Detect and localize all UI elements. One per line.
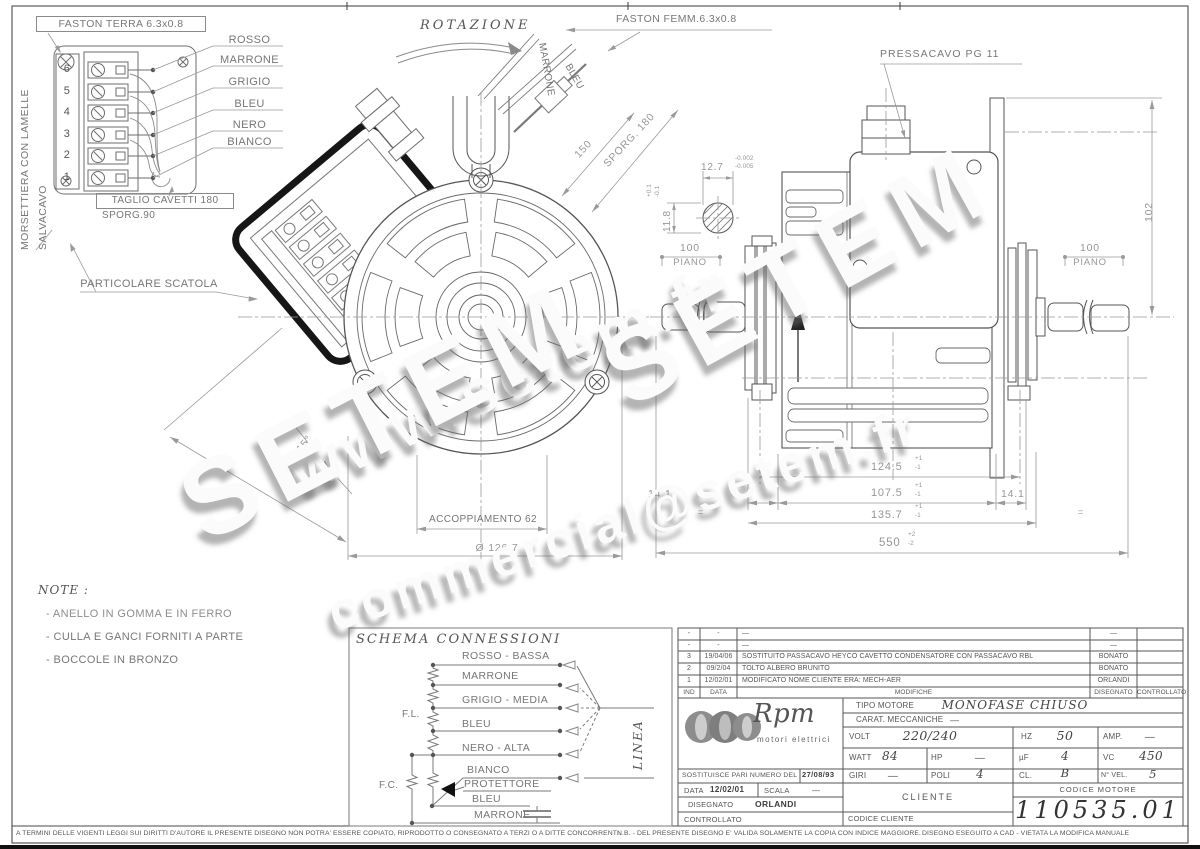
poli-value: 4 <box>955 768 1005 781</box>
schema-fc: F.C. <box>379 780 398 791</box>
rev-row-dis: BONATO <box>1090 665 1137 673</box>
rev-row-data: - <box>700 642 737 650</box>
note-item-3: - BOCCOLE IN BRONZO <box>46 654 178 666</box>
schema-rosso-bassa: ROSSO - BASSA <box>462 651 549 663</box>
giri-label: GIRI <box>849 772 866 781</box>
schema-bleu: BLEU <box>462 719 491 731</box>
terminal-6: 6 <box>58 63 76 75</box>
schema-marrone-2: MARRONE <box>474 810 530 822</box>
codice-motore-label: CODICE MOTORE <box>1013 786 1183 794</box>
motor-wires <box>478 34 586 132</box>
morsettiera-label: MORSETTIERA CON LAMELLE <box>20 89 32 250</box>
vc-value: 450 <box>1125 750 1177 763</box>
tol-minus-01: -0.1 <box>654 186 661 197</box>
dim-107-5: 107.5 <box>871 487 903 499</box>
logo-text: Rpm <box>753 700 815 729</box>
sostituisce-label: SOSTITUISCE PARI NUMERO DEL <box>682 772 797 779</box>
rev-header-modifiche: MODIFICHE <box>737 689 1090 696</box>
wire-label-rosso: ROSSO <box>212 34 287 46</box>
wire-label-bianco: BIANCO <box>212 136 287 148</box>
rev-row-data: 12/02/01 <box>700 677 737 685</box>
schema-grigio-media: GRIGIO - MEDIA <box>462 695 548 707</box>
engineering-drawing-sheet: FASTON TERRA 6.3x0.8 ROSSO MARRONE GRIGI… <box>0 0 1200 849</box>
schema-linea: LINEA <box>632 719 645 770</box>
cliente-label: CLIENTE <box>843 793 1013 803</box>
tol-550-p: +2 <box>908 531 915 538</box>
wire-label-marrone: MARRONE <box>212 54 287 66</box>
rev-row-mod: MODIFICATO NOME CLIENTE ERA: MECH-AER <box>742 677 901 685</box>
wire-label-nero: NERO <box>212 119 287 131</box>
notes-title: NOTE : <box>38 584 89 597</box>
rev-row-data: 19/04/06 <box>700 653 737 661</box>
rev-row-mod: — <box>742 630 749 638</box>
rpm-logo-icon <box>685 711 761 743</box>
nvel-value: 5 <box>1133 768 1173 781</box>
salvacavo-label: SALVACAVO <box>38 185 50 250</box>
vc-label: VC <box>1103 754 1115 763</box>
schema-title: SCHEMA CONNESSIONI <box>356 633 561 647</box>
tol-107-p: +1 <box>915 482 922 489</box>
schema-protettore: PROTETTORE <box>464 779 540 791</box>
schema-bleu-2: BLEU <box>472 794 501 806</box>
rev-row-data: - <box>700 630 737 638</box>
tol-107-m: -1 <box>915 491 921 498</box>
schema-nero-alta: NERO - ALTA <box>462 743 530 755</box>
legal-text-left: A TERMINI DELLE VIGENTI LEGGI SUI DIRITT… <box>16 830 621 837</box>
faston-terra-label: FASTON TERRA 6.3x0.8 <box>36 16 206 32</box>
terminal-1: 1 <box>58 171 76 183</box>
disegnato-label: DISEGNATO <box>688 801 733 809</box>
rev-row-dis: — <box>1090 630 1137 638</box>
legal-text-cad: DISEGNO ESEGUITO A CAD - VIETATA LA MODI… <box>922 830 1129 837</box>
tol-550-m: -2 <box>908 540 914 547</box>
rev-row-mod: — <box>742 642 749 650</box>
wire-label-bleu: BLEU <box>212 98 287 110</box>
rotation-arrow <box>396 43 518 63</box>
tol-135-m: -1 <box>915 512 921 519</box>
amp-value: — <box>1125 732 1175 743</box>
wire-label-grigio: GRIGIO <box>212 76 287 88</box>
watt-value: 84 <box>860 750 920 763</box>
schema-fl: F.L. <box>402 709 420 720</box>
rev-row-mod: TOLTO ALBERO BRUNITO <box>742 665 830 673</box>
volt-label: VOLT <box>849 733 870 742</box>
pressacavo-label: PRESSACAVO PG 11 <box>880 49 999 61</box>
rev-row-ind: - <box>678 630 700 638</box>
rev-row-data: 09/2/04 <box>700 665 737 673</box>
particolare-scatola-label: PARTICOLARE SCATOLA <box>80 278 218 290</box>
rev-row-dis: ORLANDI <box>1090 677 1137 685</box>
hp-label: HP <box>931 754 943 763</box>
tol-0002: -0.002 <box>735 155 753 162</box>
note-item-2: - CULLA E GANCI FORNITI A PARTE <box>46 631 243 643</box>
rev-row-ind: - <box>678 642 700 650</box>
giri-value: — <box>868 771 918 782</box>
piano-right-dim: 100 <box>1066 243 1114 255</box>
schema-marrone: MARRONE <box>462 671 518 683</box>
terminal-4: 4 <box>58 106 76 118</box>
uf-label: µF <box>1019 754 1029 763</box>
tol-plus-01: +0.1 <box>646 184 653 197</box>
dim-135-7: 135.7 <box>871 509 903 521</box>
rev-header-controllato: CONTROLLATO <box>1137 689 1183 696</box>
hz-label: HZ <box>1021 733 1032 742</box>
rev-row-ind: 1 <box>678 677 700 685</box>
data-label: DATA <box>684 787 704 795</box>
scala-value: — <box>812 787 820 796</box>
dim-550: 550 <box>879 537 901 550</box>
uf-value: 4 <box>1040 750 1090 763</box>
tipo-motore-label: TIPO MOTORE <box>856 702 914 711</box>
legal-text-nb: N.B. - DEL PRESENTE DISEGNO E' VALIDA SO… <box>617 830 921 837</box>
faston-femm-label: FASTON FEMM.6.3x0.8 <box>616 14 737 26</box>
scala-label: SCALA <box>764 787 790 795</box>
dim-14-1-right: 14.1 <box>1001 489 1025 501</box>
sheet-frame-lines <box>12 2 1188 843</box>
dim-12-7: 12.7 <box>701 162 724 173</box>
right-bearing-stack <box>1008 243 1045 400</box>
rev-row-ind: 3 <box>678 653 700 661</box>
nvel-label: N° VEL. <box>1101 772 1127 780</box>
terminal-2: 2 <box>58 149 76 161</box>
drawing-linework <box>0 0 1200 849</box>
thermal-protector-symbol <box>441 782 455 797</box>
taglio-cavetti-label: TAGLIO CAVETTI 180 <box>96 193 234 209</box>
hp-value: — <box>955 753 1005 764</box>
terminal-3: 3 <box>58 128 76 140</box>
tipo-motore-value: MONOFASE CHIUSO <box>930 699 1100 712</box>
disegnato-value: ORLANDI <box>755 800 797 809</box>
rev-row-mod: SOSTITUITO PASSACAVO HEYCO CAVETTO CONDE… <box>742 653 1033 661</box>
codice-cliente-label: CODICE CLIENTE <box>848 815 914 823</box>
tol-124-m: -1 <box>915 464 921 471</box>
cl-value: B <box>1040 767 1090 780</box>
terminal-5: 5 <box>58 85 76 97</box>
codice-motore-value: 110535.01 <box>1013 797 1183 823</box>
rev-header-ind: IND <box>678 689 700 696</box>
note-item-1: - ANELLO IN GOMMA E IN FERRO <box>46 608 232 620</box>
sostituisce-value: 27/08/93 <box>802 771 834 779</box>
carat-value: — <box>950 716 959 726</box>
rev-header-disegnato: DISEGNATO <box>1090 689 1137 696</box>
line-arrowheads <box>563 661 578 782</box>
rev-row-ind: 2 <box>678 665 700 673</box>
piano-right-label: PIANO <box>1066 258 1114 268</box>
logo-subtext: motori elettrici <box>757 736 831 745</box>
poli-label: POLI <box>931 772 950 781</box>
rev-row-dis: — <box>1090 642 1137 650</box>
tol-135-p: +1 <box>915 503 922 510</box>
scan-edge-bar <box>0 845 1200 849</box>
eq-mark-right: = <box>1078 508 1084 518</box>
dim-11-8: 11.8 <box>662 210 673 232</box>
rotazione-label: ROTAZIONE <box>420 19 530 33</box>
tol-0005: -0.005 <box>735 163 753 170</box>
dim-102: 102 <box>1144 202 1156 222</box>
volt-value: 220/240 <box>875 729 985 743</box>
amp-label: AMP. <box>1103 733 1122 742</box>
hz-value: 50 <box>1040 729 1090 743</box>
rev-row-dis: BONATO <box>1090 653 1137 661</box>
data-value: 12/02/01 <box>710 786 744 795</box>
rev-header-data: DATA <box>700 689 737 696</box>
sporg-90-label: SPORG.90 <box>102 210 155 221</box>
carat-label: CARAT. MECCANICHE <box>856 716 943 725</box>
cl-label: CL. <box>1019 772 1032 781</box>
schema-bianco: BIANCO <box>467 765 510 777</box>
controllato-label: CONTROLLATO <box>684 816 742 824</box>
